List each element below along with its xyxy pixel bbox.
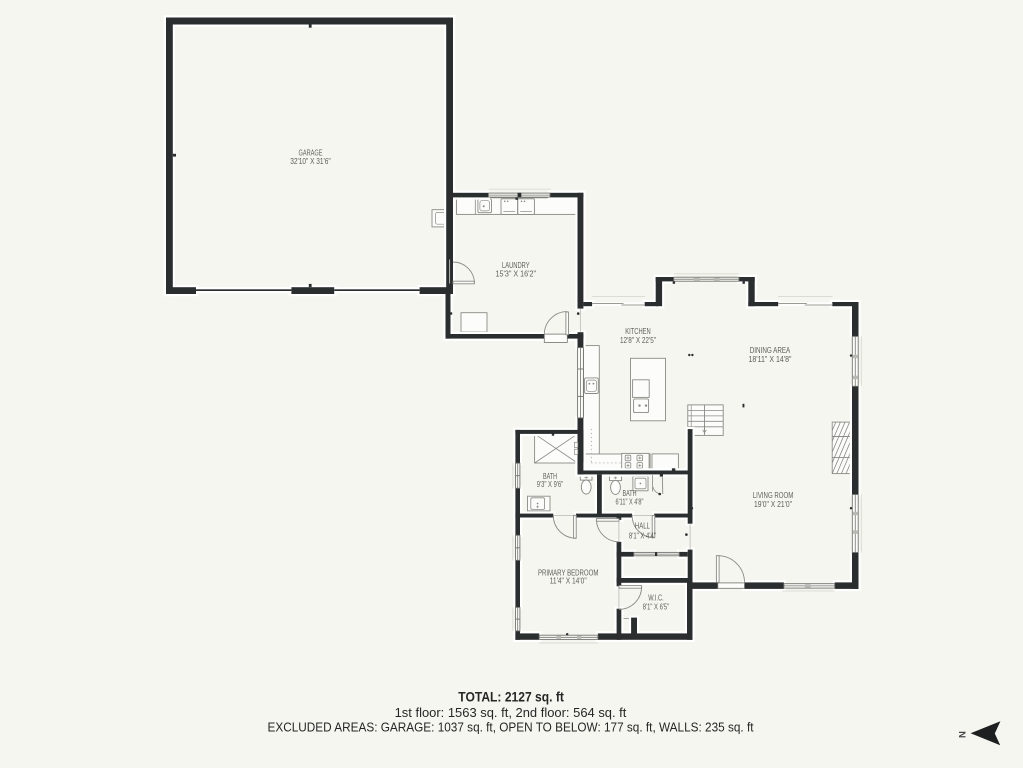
svg-text:11'4" X 14'0": 11'4" X 14'0" [550, 577, 587, 586]
svg-text:9'3" X 9'6": 9'3" X 9'6" [537, 480, 564, 489]
svg-text:8'1" X 4'4": 8'1" X 4'4" [629, 532, 656, 541]
svg-text:6'11" X 4'8": 6'11" X 4'8" [616, 498, 644, 507]
svg-text:15'3" X 16'2": 15'3" X 16'2" [496, 270, 537, 279]
svg-text:18'11" X 14'8": 18'11" X 14'8" [749, 355, 792, 364]
svg-text:DINING AREA: DINING AREA [750, 346, 791, 355]
svg-text:TOTAL: 2127 sq. ft: TOTAL: 2127 sq. ft [458, 688, 564, 704]
svg-text:12'8" X 22'5": 12'8" X 22'5" [620, 336, 656, 345]
svg-text:EXCLUDED AREAS: GARAGE: 1037 s: EXCLUDED AREAS: GARAGE: 1037 sq. ft, OPE… [268, 720, 754, 735]
svg-text:8'1" X 6'5": 8'1" X 6'5" [643, 602, 670, 611]
svg-text:19'0" X 21'0": 19'0" X 21'0" [754, 500, 792, 509]
svg-text:HALL: HALL [635, 522, 650, 531]
svg-text:LIVING ROOM: LIVING ROOM [753, 491, 794, 500]
svg-text:1st floor: 1563 sq. ft, 2nd fl: 1st floor: 1563 sq. ft, 2nd floor: 564 s… [395, 705, 627, 720]
svg-text:N: N [956, 731, 967, 738]
svg-text:W.I.C.: W.I.C. [648, 594, 664, 603]
svg-text:KITCHEN: KITCHEN [625, 327, 651, 336]
svg-text:32'10" X 31'6": 32'10" X 31'6" [290, 157, 331, 166]
